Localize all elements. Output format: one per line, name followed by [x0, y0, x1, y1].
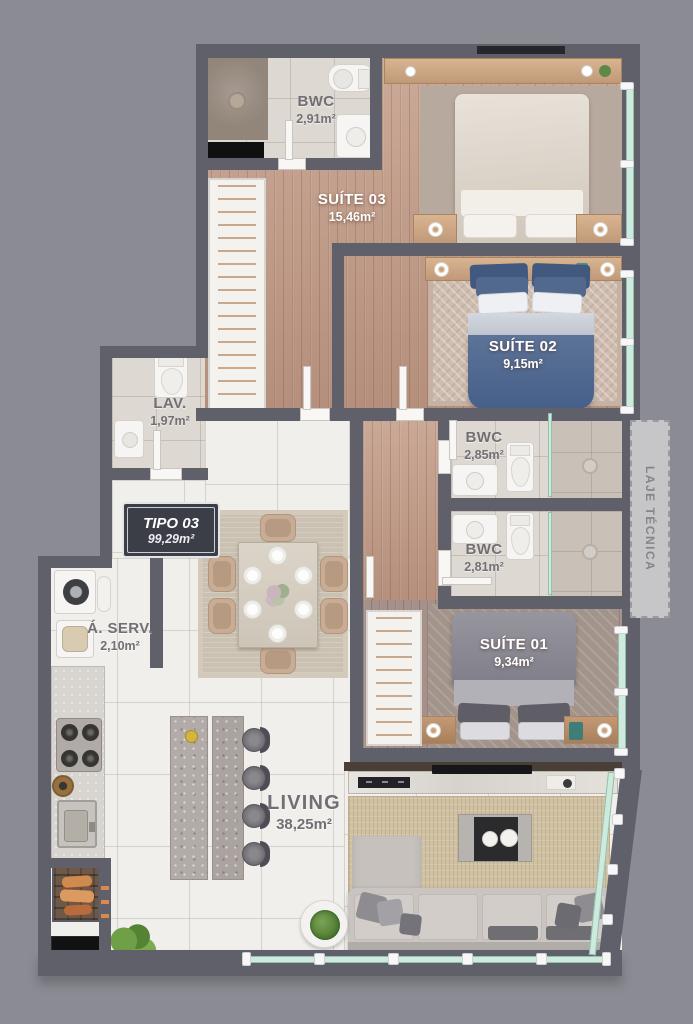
wall-segment [99, 858, 111, 952]
bed-sheet [454, 680, 574, 706]
bathroom-vanity [452, 464, 498, 496]
fruit [185, 730, 198, 743]
lamp-icon [600, 262, 615, 277]
floor-plan-canvas: LAJE TÉCNICA BWC 2,91m² SUÍTE 03 15,46m²… [0, 0, 693, 1024]
window-frame [614, 748, 628, 756]
toilet-tank [358, 69, 370, 89]
tank-basin [62, 626, 88, 652]
wall-segment [350, 748, 622, 762]
bed-pillow-white [460, 722, 510, 740]
cup [482, 831, 498, 847]
window-frame [602, 952, 611, 966]
toilet [154, 352, 188, 398]
bed-pillow [463, 214, 517, 238]
toilet-bowl [333, 69, 353, 89]
lamp-icon [593, 222, 608, 237]
dining-chair [260, 514, 296, 542]
window-frame [620, 238, 634, 246]
toilet-tank [510, 445, 530, 456]
window-mullion [620, 160, 634, 168]
wall-segment [332, 243, 622, 256]
shower-head [582, 544, 598, 560]
sink-basin [64, 810, 88, 842]
bathroom-vanity [336, 114, 374, 158]
room-label-area-servico: Á. SERV. 2,10m² [87, 620, 153, 654]
decor-item [405, 66, 416, 77]
apartment-floor-plan: LAJE TÉCNICA BWC 2,91m² SUÍTE 03 15,46m²… [0, 0, 693, 1024]
grill-knob [101, 914, 109, 918]
door-leaf [442, 577, 492, 585]
decor-item [563, 779, 572, 788]
sink-bowl [466, 521, 484, 539]
lamp-icon [434, 262, 449, 277]
grill-knob [101, 900, 109, 904]
window-mullion [607, 864, 618, 875]
wall-segment [38, 950, 622, 976]
sofa-pillow [399, 913, 422, 936]
bed-pillow [525, 214, 579, 238]
nightstand [564, 716, 618, 744]
potted-plant [310, 910, 340, 940]
barbecue-grill [52, 866, 100, 922]
washing-machine [54, 570, 96, 614]
bed-sheet-fold [461, 190, 583, 216]
bed-pillow-white [478, 292, 529, 315]
burner-icon [82, 750, 99, 767]
stool-seat [242, 804, 266, 828]
stool-seat [242, 842, 266, 866]
window-mullion [314, 953, 325, 965]
coffee-table [458, 814, 532, 862]
plate [243, 600, 262, 619]
burner-icon [61, 724, 78, 741]
window-frame [620, 406, 634, 414]
wall-segment [438, 511, 451, 550]
wall-segment [306, 158, 376, 170]
wardrobe-suite03 [208, 178, 266, 412]
soundbar-detail [382, 781, 388, 783]
plate [243, 566, 262, 585]
bathroom-vanity [452, 514, 498, 544]
bed-pillow-white [518, 722, 568, 740]
dining-chair [208, 556, 236, 592]
fruit-bowl [52, 775, 74, 797]
window-frame [614, 626, 628, 634]
door-leaf [153, 430, 161, 470]
laje-tecnica-slab: LAJE TÉCNICA [630, 420, 670, 618]
suite03-headboard-shelf [384, 58, 622, 84]
suite03-window-top [477, 46, 565, 54]
wall-segment [38, 556, 51, 974]
unit-type-badge: TIPO 03 99,29m² [122, 502, 220, 558]
sink-bowl [122, 432, 138, 448]
decor-vase [97, 576, 111, 612]
dining-chair [260, 646, 296, 674]
wall-segment [330, 408, 396, 421]
toilet-tank [510, 515, 530, 526]
wall-segment [100, 346, 112, 568]
room-label-living: LIVING 38,25m² [267, 791, 341, 835]
corridor-wood-floor [363, 412, 438, 608]
toilet-bowl [161, 368, 183, 395]
window-frame [614, 768, 625, 779]
window-mullion [620, 338, 634, 346]
shower-head [582, 458, 598, 474]
window-mullion [612, 814, 623, 825]
lamp-icon [426, 723, 441, 738]
wall-segment [332, 243, 344, 421]
room-label-bwc-suite03: BWC 2,91m² [296, 93, 336, 127]
burner-icon [82, 724, 99, 741]
bed-suite01 [452, 612, 576, 746]
bar-stool [240, 724, 270, 756]
window-frame [620, 270, 634, 278]
bed-suite03 [455, 94, 589, 246]
side-table [300, 900, 348, 948]
coffee-table-tray [474, 817, 518, 861]
sofa-pillow [554, 902, 582, 930]
sofa-cushion [418, 894, 478, 940]
wall-segment [350, 408, 363, 760]
window-mullion [462, 953, 473, 965]
shower-glass-partition [548, 512, 552, 595]
stool-seat [242, 728, 266, 752]
laje-tecnica-label: LAJE TÉCNICA [643, 466, 657, 571]
kitchen-sink [57, 800, 97, 848]
window-mullion [614, 688, 628, 696]
stool-seat [242, 766, 266, 790]
room-label-suite02: SUÍTE 02 9,15m² [489, 338, 557, 372]
decor-item [581, 65, 593, 77]
bar-stool [240, 800, 270, 832]
wardrobe-suite01 [366, 610, 422, 746]
unit-type-badge-inner: TIPO 03 99,29m² [127, 507, 215, 553]
wall-segment [100, 346, 208, 358]
door-leaf [285, 120, 293, 160]
tv-screen [432, 765, 532, 774]
toilet-bowl [511, 457, 530, 487]
nightstand [576, 214, 622, 244]
bed-pillow-white [532, 292, 583, 315]
decor-plant [599, 65, 611, 77]
wall-segment [202, 158, 278, 170]
door-leaf [303, 366, 311, 410]
grill-food [60, 889, 95, 903]
toilet [506, 512, 534, 560]
grill-food [62, 875, 93, 888]
window-mullion [602, 914, 613, 925]
plate [268, 546, 287, 565]
window-frame [242, 952, 251, 966]
bed-suite02 [468, 261, 594, 409]
wall-segment [438, 498, 622, 511]
grill-knob [101, 886, 109, 890]
window-mullion [388, 953, 399, 965]
bar-stool [240, 838, 270, 870]
dining-chair [208, 598, 236, 634]
sink-bowl [466, 472, 484, 490]
plate [268, 624, 287, 643]
door-leaf [366, 556, 374, 598]
lamp-icon [428, 222, 443, 237]
cooktop [56, 718, 102, 772]
sofa-seat-pad [488, 926, 538, 940]
room-label-lav: LAV. 1,97m² [150, 395, 190, 429]
shower-drain [228, 92, 246, 110]
sofa [348, 888, 614, 958]
window-frame [620, 82, 634, 90]
decor-basket [569, 722, 583, 740]
room-label-bwc-suite01: BWC 2,81m² [464, 541, 504, 575]
cup [500, 829, 518, 847]
burner-icon [61, 750, 78, 767]
door-leaf [399, 366, 407, 410]
wall-segment [438, 596, 622, 609]
plate [294, 600, 313, 619]
washer-door [63, 579, 89, 605]
window-balcony [246, 956, 608, 963]
soundbar-detail [366, 781, 372, 783]
room-label-suite01: SUÍTE 01 9,34m² [480, 636, 548, 670]
grill-food [64, 904, 92, 915]
bar-stool [240, 762, 270, 794]
dining-chair [320, 598, 348, 634]
door-leaf [449, 420, 457, 460]
wall-segment [196, 408, 300, 421]
console-decor [546, 775, 576, 790]
shower-glass-partition [548, 413, 552, 497]
flower-centerpiece [264, 582, 292, 608]
room-label-bwc-suite02: BWC 2,85m² [464, 429, 504, 463]
bwc-suite02-shower-floor [551, 412, 622, 498]
dining-chair [320, 556, 348, 592]
wall-segment [370, 44, 382, 170]
plate [294, 566, 313, 585]
toilet [506, 442, 534, 492]
window-mullion [536, 953, 547, 965]
wall-segment [196, 44, 640, 58]
wall-segment [112, 468, 150, 480]
toilet [328, 64, 374, 92]
lamp-icon [597, 723, 612, 738]
room-label-suite03: SUÍTE 03 15,46m² [318, 191, 386, 225]
lav-sink [114, 420, 144, 458]
soundbar-detail [398, 781, 404, 783]
wall-segment [196, 44, 208, 358]
faucet-icon [89, 822, 95, 832]
nightstand [413, 214, 457, 244]
soundbar [358, 777, 410, 788]
toilet-bowl [511, 527, 530, 555]
wall-segment [182, 468, 208, 480]
sink-bowl [346, 127, 366, 147]
